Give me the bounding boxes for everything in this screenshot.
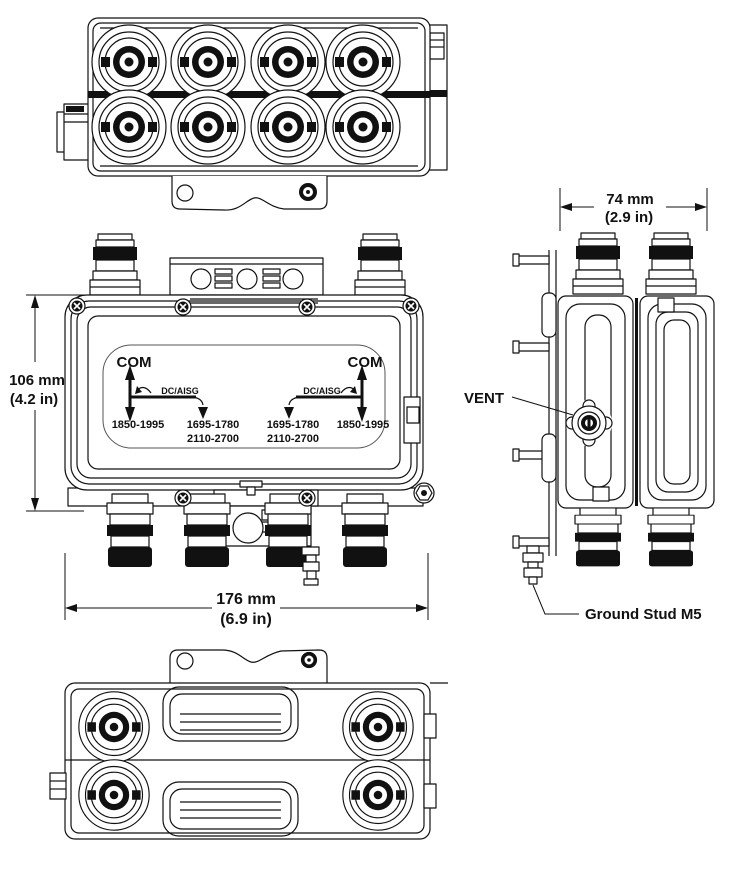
front-view: COM COM DC/AISG DC/AISG 1850-1995 1695-1… [65,234,434,585]
rf-connector-icon [575,508,621,566]
rf-connector-icon [326,90,400,164]
rf-connector-icon [184,494,230,567]
width-metric-label: 176 mm [216,591,276,608]
pole-mount-bracket [513,250,556,556]
rf-connector-icon [92,25,166,99]
bottom-view [50,650,448,839]
bracket-hole [177,185,193,201]
top-view [57,18,447,210]
band-label: 2110-2700 [187,433,239,445]
rf-connector-icon [107,494,153,567]
band-label: 2110-2700 [267,433,319,445]
bracket-hole [177,653,193,669]
width-imperial-label: (6.9 in) [220,611,272,628]
rf-connector-icon [355,234,405,295]
dimension-depth: 74 mm (2.9 in) [560,188,707,231]
technical-drawing-canvas: COM COM DC/AISG DC/AISG 1850-1995 1695-1… [0,0,752,874]
rf-connector-icon [90,234,140,295]
com-label-right: COM [348,354,383,371]
rf-connector-icon [648,508,694,566]
band-label: 1850-1995 [112,419,165,431]
corner-screw-icon [403,298,419,314]
height-imperial-label: (4.2 in) [10,391,58,408]
ground-stud-label: Ground Stud M5 [585,606,702,623]
vent [566,400,612,446]
rf-connector-icon [251,25,325,99]
band-label: 1695-1780 [267,419,320,431]
rf-connector-icon [92,90,166,164]
rf-connector-icon [171,90,245,164]
dc-aisg-label-right: DC/AISG [303,386,341,396]
rf-connector-icon [342,494,388,567]
rf-connector-icon [343,760,413,830]
band-label: 1850-1995 [337,419,390,431]
front-ground-stud [302,547,319,585]
callout-vent: VENT [464,390,573,415]
depth-imperial-label: (2.9 in) [605,209,653,226]
height-metric-label: 106 mm [9,372,65,389]
screw-icon [299,490,315,506]
dc-aisg-label-left: DC/AISG [161,386,199,396]
screw-icon [299,299,315,315]
rf-connector-icon [573,233,623,294]
screw-icon [175,299,191,315]
band-label: 1695-1780 [187,419,240,431]
corner-screw-icon [69,298,85,314]
plate-hole [233,513,263,543]
ground-stud [523,546,543,584]
vent-label: VENT [464,390,504,407]
rf-connector-icon [343,692,413,762]
bracket-bolt-icon [299,183,317,201]
com-label-left: COM [117,354,152,371]
rf-connector-icon [171,25,245,99]
rf-connector-icon [251,90,325,164]
bottom-view-ground-stud [50,773,66,799]
screw-icon [175,490,191,506]
rf-connector-icon [326,25,400,99]
hex-bolt-icon [414,483,434,503]
side-housing-right-half [640,296,714,508]
drawing-svg: COM COM DC/AISG DC/AISG 1850-1995 1695-1… [0,0,752,874]
rf-connector-icon [79,692,149,762]
front-housing [65,295,423,490]
bracket-bolt-icon [301,652,317,668]
callout-ground-stud: Ground Stud M5 [533,585,702,623]
side-view [513,233,714,584]
depth-metric-label: 74 mm [606,191,654,208]
rf-connector-icon [79,760,149,830]
rf-connector-icon [646,233,696,294]
